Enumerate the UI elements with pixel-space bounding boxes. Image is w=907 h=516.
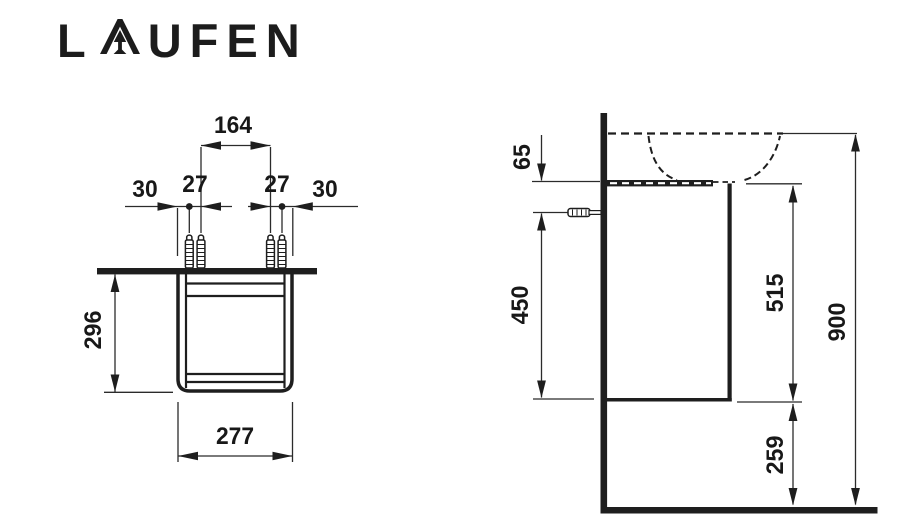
wall-plug-icon — [197, 235, 205, 268]
cabinet-inner-walls — [186, 274, 285, 388]
basin-bowl-left — [649, 136, 678, 180]
wall-anchor-icon — [533, 209, 601, 217]
dim-label-259: 259 — [763, 421, 789, 489]
dim-label-450: 450 — [508, 271, 534, 339]
dim-label-30-right: 30 — [292, 177, 359, 203]
dim-label-900: 900 — [825, 288, 851, 356]
edge-extension-lines — [178, 208, 293, 256]
basin-bowl-right — [745, 136, 781, 180]
wall-plug-icon — [267, 235, 275, 268]
dim-label-27-left: 27 — [162, 172, 229, 198]
dim-label-515: 515 — [763, 259, 789, 327]
dim-label-65: 65 — [510, 123, 536, 191]
washbasin-slab — [97, 268, 317, 274]
screw-axis-lines — [189, 208, 282, 233]
wall-plug-icon — [185, 235, 193, 268]
cabinet-bottom-panel — [607, 398, 732, 402]
dim-label-164: 164 — [200, 113, 267, 139]
wall-line — [601, 113, 608, 514]
dim-label-277: 277 — [202, 424, 269, 450]
wall-plug-icon — [278, 235, 286, 268]
dim-label-296: 296 — [81, 296, 107, 364]
technical-drawing-page: L UFEN — [0, 0, 907, 516]
floor-line — [601, 507, 878, 514]
cabinet-front-panel — [728, 184, 732, 402]
cabinet-rails — [186, 284, 285, 383]
